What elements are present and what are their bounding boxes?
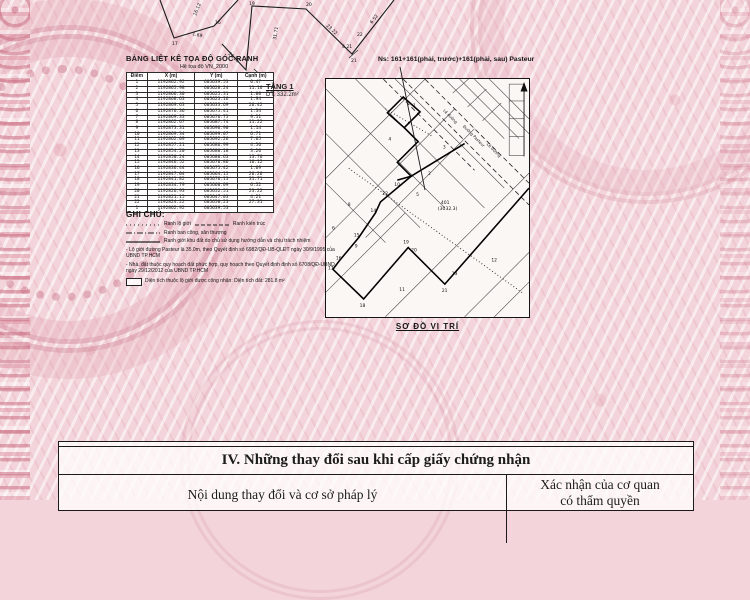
parcel-number: 14 [371,208,377,214]
setback-dotted-lines [349,109,524,294]
note-lo-gioi-pasteur: - Lộ giới đường Pasteur là 35.0m, theo Q… [126,247,341,260]
location-map: 1 2 3 4 5 6 8 9 10 11 12 13 14 15 16 17 … [325,78,530,318]
parcel-number: 2 [428,171,431,177]
parcel-number: 21 [442,288,448,294]
legend-row-2: Ranh ban công, sân thượng [126,231,341,237]
section-iv-left-header: Nội dung thay đổi và cơ sở pháp lý [59,475,507,543]
floor-label: TẦNG 1 DT: 332.2m² [266,82,299,98]
note-quy-hoach: - Nhà, đất thuộc quy hoạch đất phức hợp,… [126,262,341,275]
parcel-number: 10 [394,182,400,188]
ornamental-border-right [720,0,750,500]
map-caption: SƠ ĐỒ VỊ TRÍ [325,322,530,331]
parcel-number: 4 [388,137,391,143]
floor-area: DT: 332.2m² [266,92,299,98]
area-note-label: Diện tích thuộc lộ giới được công nhận: … [145,278,285,284]
parcel-number: 11 [399,287,405,293]
dotted-line-sample [126,223,160,227]
parcel-number: 19 [403,240,409,246]
parcel-number: 9 [355,244,358,250]
street-name-label: Đường Pasteur [462,124,486,148]
parcel-number: 1 [413,103,416,109]
legend-ban-cong-label: Ranh ban công, sân thượng [164,231,227,237]
floor-title: TẦNG 1 [266,82,299,91]
parcel-id-number: 401 [441,200,450,206]
parcel-number: 5 [416,192,419,198]
parcel-number: 15 [354,233,360,239]
legend-row-1: Ranh lộ giới Ranh kiến trúc [126,222,341,228]
parcel-number: 8 [348,202,351,208]
right-header-line2: có thẩm quyền [560,493,639,509]
parcel-number: 12 [491,257,497,263]
right-header-line1: Xác nhận của cơ quan [540,477,660,493]
area-note-row: Diện tích thuộc lộ giới được công nhận: … [126,278,341,286]
coordinate-table-title: BẢNG LIỆT KÊ TỌA ĐỘ GÓC RANH [126,54,282,63]
section-iv-columns: Nội dung thay đổi và cơ sở pháp lý Xác n… [59,475,693,543]
parcel-number: 22 [382,191,388,197]
parcel-grid-lines [326,79,529,317]
legend-lo-gioi-label: Ranh lộ giới [164,222,191,228]
subject-parcel-boundary [333,97,529,299]
area-legend-swatch [126,278,142,286]
notes-heading: GHI CHÚ: [126,210,341,219]
ornamental-border-left [0,0,30,500]
solid-line-sample [126,240,160,244]
parcel-number: 18 [360,303,366,309]
section-iv-title: IV. Những thay đổi sau khi cấp giấy chứn… [59,447,693,475]
map-address-label: Ns: 161+161(phải, trước)+161(phải, sau) … [378,56,708,63]
dashed-line-sample [195,223,229,227]
parcel-number: 13 [452,271,458,277]
coordinate-table-subtitle: Hệ tọa độ VN_2000 [126,64,282,70]
legend-row-3: Ranh giới khu đất do chủ sử dụng hướng d… [126,239,341,245]
section-iv-table: IV. Những thay đổi sau khi cấp giấy chứn… [58,441,694,511]
notes-section: GHI CHÚ: Ranh lộ giới Ranh kiến trúc Ran… [126,210,341,286]
certificate-page: { "table": { "title": "BẢNG LIỆT KÊ TỌA … [0,0,750,500]
parcel-number: 20 [411,247,417,253]
parcel-number: 3 [443,144,446,150]
coordinate-table: Điểm X (m) Y (m) Cạnh (m) 11192862.92605… [126,72,274,213]
legend-kien-truc-label: Ranh kiến trúc [233,222,265,228]
parcel-id-area: (3032.3) [438,206,458,212]
dash-dot-line-sample [126,231,160,235]
sidewalk-label: Lề đường [486,142,503,159]
north-arrow-icon [521,83,527,156]
coordinate-table-section: BẢNG LIỆT KÊ TỌA ĐỘ GÓC RANH Hệ tọa độ V… [126,54,282,213]
section-iv-right-header: Xác nhận của cơ quan có thẩm quyền [507,475,693,543]
legend-khu-dat-label: Ranh giới khu đất do chủ sử dụng hướng d… [164,239,310,245]
location-map-drawing: 1 2 3 4 5 6 8 9 10 11 12 13 14 15 16 17 … [326,79,529,317]
